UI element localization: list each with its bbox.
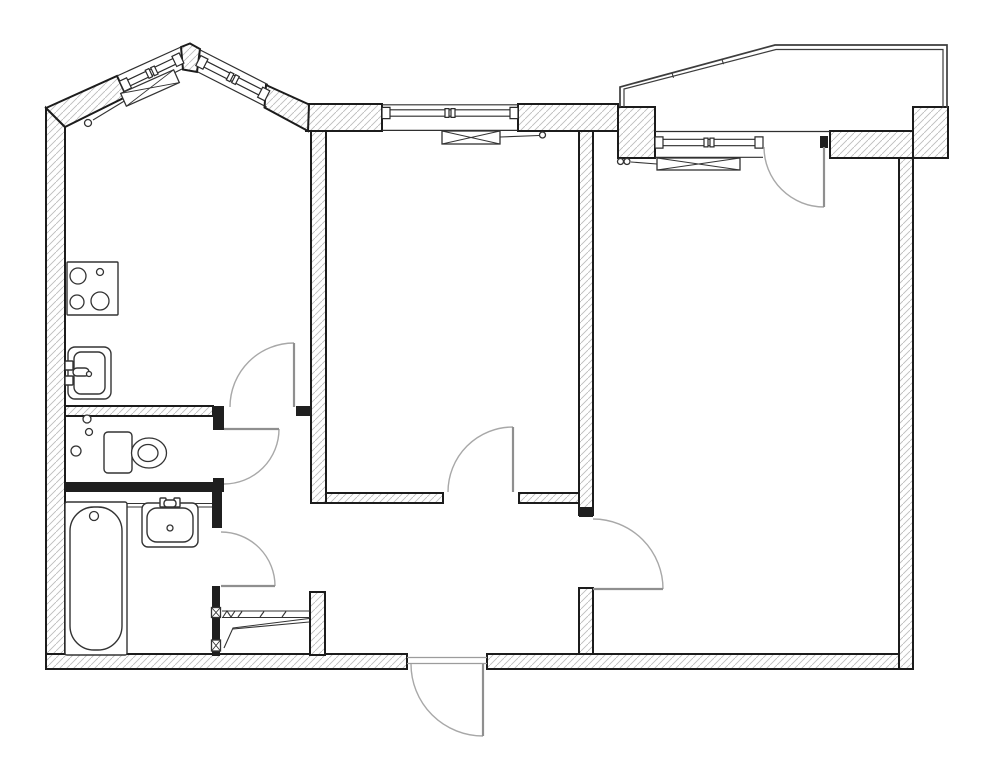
jamb-toilet-top bbox=[213, 406, 224, 430]
stove-icon-part bbox=[70, 268, 86, 284]
bathtub-icon-part bbox=[70, 507, 122, 650]
wall-hall-bedroom-lower bbox=[579, 588, 593, 654]
bedroom-window-post bbox=[655, 137, 663, 148]
wall-livingroom-bottom-a bbox=[326, 493, 443, 503]
kitchen-sink-icon bbox=[65, 347, 111, 399]
wall-livingroom-bottom-b bbox=[519, 493, 579, 503]
background bbox=[0, 0, 1001, 768]
toilet-icon-part bbox=[138, 445, 158, 462]
wall-kitchen-livingroom bbox=[311, 131, 326, 503]
livingroom-window-post bbox=[445, 109, 449, 118]
wall-toilet-bath-divider bbox=[65, 482, 224, 492]
pipe-risers-icon-part bbox=[71, 446, 81, 456]
stove-icon-part bbox=[70, 295, 84, 309]
closet-shelves-icon-part bbox=[212, 608, 221, 618]
radiator-bedroom-icon-part bbox=[624, 159, 630, 165]
livingroom-window-post bbox=[451, 109, 455, 118]
stove-icon-part bbox=[91, 292, 109, 310]
pipe-risers-icon-part bbox=[86, 429, 93, 436]
radiator-bedroom-icon-part bbox=[657, 158, 740, 170]
wall-top-mid-left bbox=[306, 104, 382, 131]
wall-top-mid-right bbox=[518, 104, 618, 131]
floor-plan-canvas bbox=[0, 0, 1001, 768]
kitchen-sink-icon-part bbox=[65, 376, 73, 385]
jamb-kitchen-door bbox=[296, 406, 311, 416]
wall-bath-right-top bbox=[212, 492, 222, 528]
wall-top-right-corner-block bbox=[913, 107, 948, 158]
livingroom-window-post bbox=[382, 107, 390, 118]
toilet-icon-part bbox=[104, 432, 132, 473]
radiator-livingroom-icon-part bbox=[540, 132, 546, 138]
kitchen-sink-icon-part bbox=[65, 361, 73, 370]
bedroom-window-post bbox=[704, 138, 708, 147]
wall-right bbox=[899, 158, 913, 669]
wall-top-right-a bbox=[618, 107, 655, 158]
bathtub-icon bbox=[65, 502, 127, 655]
washbasin-icon-part bbox=[167, 525, 173, 531]
washbasin-icon-part bbox=[164, 500, 176, 507]
closet-shelves-icon-part bbox=[212, 640, 221, 651]
wall-hall-bedroom-upper bbox=[579, 131, 593, 515]
jamb-bedroom-door bbox=[579, 507, 593, 517]
stove-icon-part bbox=[97, 269, 104, 276]
bedroom-window-post bbox=[755, 137, 763, 148]
radiator-livingroom-icon-part bbox=[442, 131, 500, 144]
wall-bay-apex bbox=[181, 44, 200, 73]
post-balcony-door bbox=[820, 136, 828, 148]
pipe-risers-icon-part bbox=[83, 415, 91, 423]
wall-closet-right bbox=[310, 592, 325, 655]
radiator-kitchen-icon-part bbox=[85, 120, 92, 127]
livingroom-window-post bbox=[510, 107, 518, 118]
radiator-bedroom-icon-part bbox=[618, 159, 624, 165]
wall-bottom-right bbox=[487, 654, 913, 669]
wall-bottom-left bbox=[46, 654, 407, 669]
floor-plan bbox=[0, 0, 1001, 768]
stove-icon bbox=[67, 262, 118, 315]
bathtub-icon-part bbox=[90, 512, 99, 521]
wall-left bbox=[46, 108, 65, 669]
kitchen-sink-icon-part bbox=[87, 372, 92, 377]
bedroom-window-post bbox=[710, 138, 714, 147]
wall-top-right-b bbox=[830, 131, 913, 158]
